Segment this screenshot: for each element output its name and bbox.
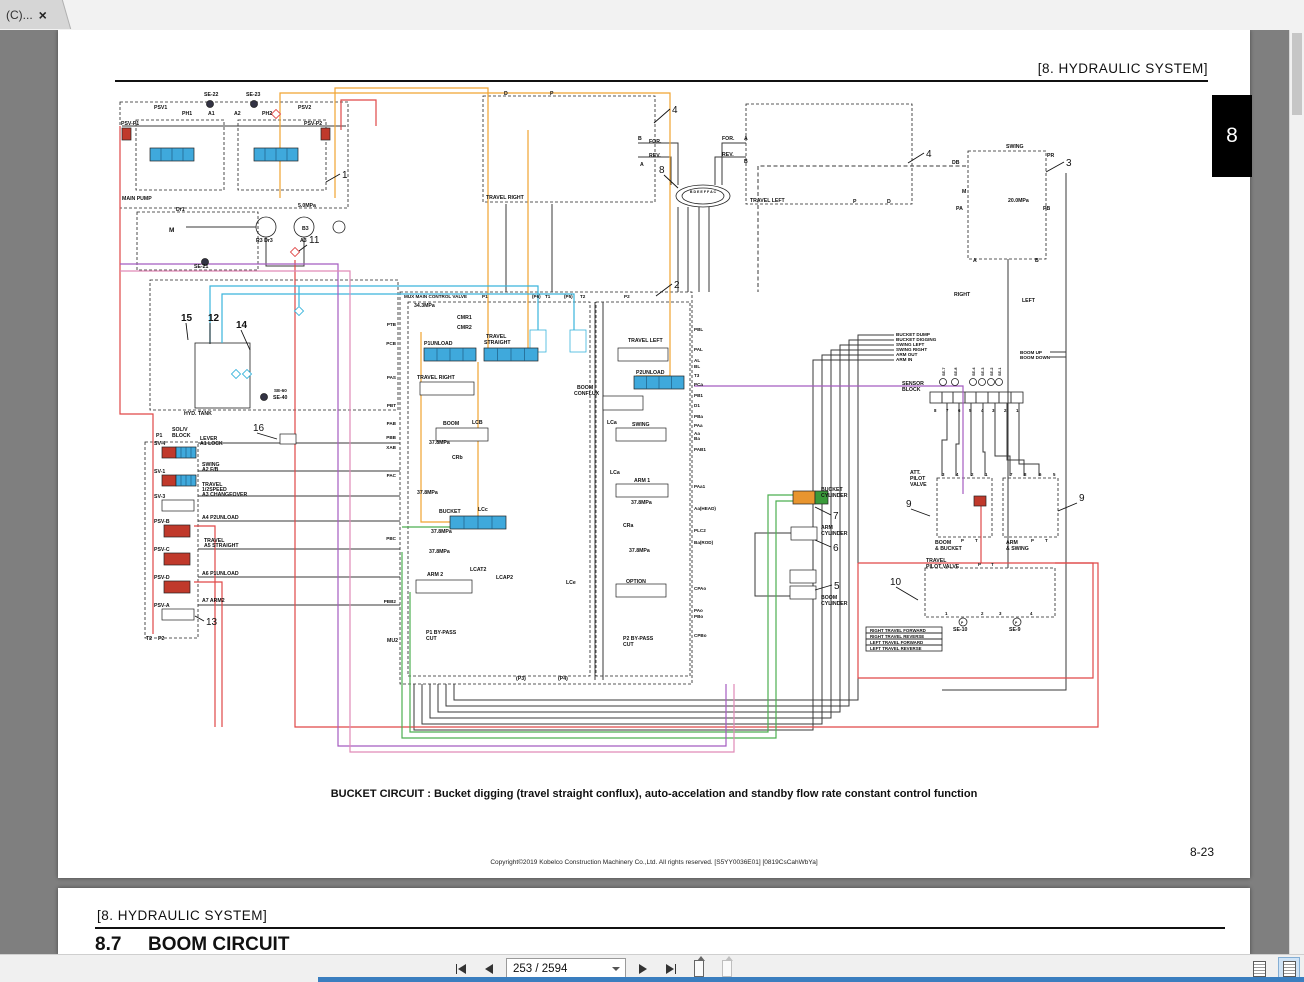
svg-text:SV-4: SV-4 (154, 441, 165, 447)
svg-text:PAa1: PAa1 (694, 484, 706, 489)
svg-text:P2: P2 (624, 294, 630, 299)
svg-text:A7 ARM2: A7 ARM2 (202, 598, 225, 604)
header-rule-next (95, 927, 1225, 929)
svg-text:CMR1: CMR1 (457, 315, 472, 321)
svg-text:14: 14 (236, 320, 248, 331)
svg-text:8: 8 (1024, 472, 1027, 477)
scrollbar-thumb[interactable] (1292, 33, 1302, 115)
svg-text:SE-60: SE-60 (274, 388, 287, 393)
svg-text:PAB1: PAB1 (694, 447, 706, 452)
svg-text:PBB2: PBB2 (384, 599, 397, 604)
svg-text:PSV-P2: PSV-P2 (304, 121, 322, 127)
page-number-combo[interactable]: 253 / 2594 (506, 958, 626, 979)
svg-text:1: 1 (342, 170, 348, 181)
svg-text:6: 6 (1039, 472, 1042, 477)
svg-text:T2: T2 (580, 294, 586, 299)
svg-text:(P4): (P4) (558, 676, 568, 682)
svg-text:CYLINDER: CYLINDER (821, 531, 848, 537)
svg-text:A5 STRAIGHT: A5 STRAIGHT (204, 543, 239, 549)
single-page-icon (1253, 961, 1266, 977)
svg-text:ARM IN: ARM IN (896, 357, 913, 362)
svg-text:CPAo: CPAo (694, 586, 706, 591)
svg-text:9: 9 (1079, 493, 1085, 504)
svg-text:CYLINDER: CYLINDER (821, 601, 848, 607)
svg-text:9: 9 (906, 499, 912, 510)
svg-text:PSV-C: PSV-C (154, 547, 170, 553)
svg-text:M: M (962, 189, 966, 195)
svg-text:4: 4 (981, 408, 984, 413)
svg-text:BL: BL (694, 364, 700, 369)
svg-text:T: T (1045, 538, 1048, 543)
svg-text:OPTION: OPTION (626, 579, 646, 585)
svg-text:PSV-A: PSV-A (154, 603, 170, 609)
svg-text:PH1: PH1 (182, 111, 192, 117)
svg-text:3: 3 (1066, 158, 1072, 169)
svg-text:CRa: CRa (623, 523, 633, 529)
copyright-line: Copyright©2019 Kobelco Construction Mach… (58, 859, 1250, 866)
svg-text:5: 5 (1053, 472, 1056, 477)
svg-text:BOOM: BOOM (443, 421, 459, 427)
svg-text:1: 1 (945, 611, 948, 616)
svg-text:11: 11 (309, 235, 320, 246)
svg-text:XAB: XAB (386, 445, 396, 450)
svg-text:PBo: PBo (694, 614, 703, 619)
svg-text:P: P (1031, 538, 1034, 543)
svg-text:PTB: PTB (387, 322, 397, 327)
svg-text:SE-9: SE-9 (1009, 627, 1021, 633)
svg-text:PSV1: PSV1 (154, 105, 167, 111)
svg-text:PCa: PCa (694, 382, 703, 387)
first-page-bar (456, 964, 457, 974)
svg-text:CPBo: CPBo (694, 633, 707, 638)
svg-text:STRAIGHT: STRAIGHT (484, 340, 511, 346)
svg-text:LCc: LCc (478, 507, 488, 513)
svg-text:B: B (744, 159, 748, 165)
chapter-header-next: [8. HYDRAULIC SYSTEM] (97, 908, 267, 923)
svg-text:RIGHT TRAVEL REVERSE: RIGHT TRAVEL REVERSE (870, 634, 924, 639)
svg-text:T1: T1 (545, 294, 551, 299)
last-page-bar (675, 964, 676, 974)
pdf-viewer-window: (C)... × SE-22SE-23PSV1PSV2PH1A1A2PH2PSV… (0, 0, 1304, 982)
svg-text:SE-3: SE-3 (981, 368, 985, 376)
first-page-button[interactable] (450, 958, 472, 979)
svg-text:8: 8 (659, 165, 665, 176)
svg-text:LCe: LCe (566, 580, 576, 586)
svg-text:16: 16 (253, 423, 265, 434)
svg-text:TRAVEL LEFT: TRAVEL LEFT (750, 198, 786, 204)
svg-text:D: D (504, 91, 508, 97)
previous-page-arrow-icon (485, 964, 493, 974)
svg-text:7: 7 (1010, 472, 1013, 477)
svg-text:MU2: MU2 (387, 638, 398, 644)
svg-text:SE-1: SE-1 (998, 368, 1002, 376)
svg-text:LEFT: LEFT (1022, 298, 1036, 304)
svg-text:37.8MPa: 37.8MPa (417, 490, 438, 496)
svg-text:P: P (961, 621, 964, 625)
svg-text:6: 6 (833, 543, 839, 554)
svg-text:RIGHT: RIGHT (954, 292, 971, 298)
svg-text:PILOT VALVE: PILOT VALVE (926, 564, 960, 570)
svg-text:D: D (887, 199, 891, 205)
svg-text:SE-22: SE-22 (204, 92, 219, 98)
svg-text:ARM 2: ARM 2 (427, 572, 443, 578)
svg-text:ARM 1: ARM 1 (634, 478, 650, 484)
svg-text:CUT: CUT (623, 642, 634, 648)
svg-text:PB1: PB1 (694, 393, 703, 398)
svg-text:A: A (744, 136, 748, 142)
svg-text:37.8MPa: 37.8MPa (429, 549, 450, 555)
svg-text:REV.: REV. (722, 152, 734, 158)
svg-text:PA: PA (956, 206, 963, 212)
svg-text:PAC: PAC (387, 473, 397, 478)
svg-text:Aa(HEAD): Aa(HEAD) (694, 506, 716, 511)
svg-text:BLOCK: BLOCK (172, 433, 191, 439)
svg-text:SE-2: SE-2 (990, 368, 994, 376)
tab-close-icon[interactable]: × (39, 7, 47, 23)
svg-text:PR: PR (1047, 153, 1054, 159)
svg-text:A2: A2 (234, 111, 241, 117)
svg-text:SE-8: SE-8 (954, 368, 958, 376)
next-page-button[interactable] (632, 958, 654, 979)
svg-text:P2UNLOAD: P2UNLOAD (636, 370, 665, 376)
combo-dropdown-arrow-icon[interactable] (612, 967, 620, 971)
svg-text:PSV2: PSV2 (298, 105, 311, 111)
svg-text:SV-3: SV-3 (154, 494, 165, 500)
header-rule (115, 80, 1208, 82)
svg-text:HYD. TANK: HYD. TANK (184, 411, 212, 417)
svg-text:Ba: Ba (694, 436, 700, 441)
svg-text:A: A (640, 162, 644, 168)
svg-text:A3 CHANGEOVER: A3 CHANGEOVER (202, 492, 248, 498)
svg-text:CONFLUX: CONFLUX (574, 391, 600, 397)
svg-text:P: P (550, 91, 554, 97)
svg-text:6: 6 (958, 408, 961, 413)
svg-text:PBB: PBB (386, 435, 396, 440)
svg-text:BUCKET: BUCKET (439, 509, 461, 515)
svg-text:P: P (1015, 621, 1018, 625)
svg-text:D1: D1 (694, 403, 700, 408)
svg-text:13: 13 (206, 617, 218, 628)
vertical-scrollbar[interactable] (1289, 30, 1304, 955)
previous-view-icon (694, 960, 704, 977)
svg-text:MAIN PUMP: MAIN PUMP (122, 196, 152, 202)
svg-text:37.8MPa: 37.8MPa (631, 500, 652, 506)
document-tab[interactable]: (C)... × (0, 0, 58, 29)
svg-text:R3 Dr3: R3 Dr3 (256, 238, 273, 244)
svg-text:SE-7: SE-7 (942, 368, 946, 376)
svg-text:CUT: CUT (426, 636, 437, 642)
svg-text:FOR.: FOR. (722, 136, 735, 142)
svg-text:TRAVEL RIGHT: TRAVEL RIGHT (417, 375, 456, 381)
svg-text:2: 2 (981, 611, 984, 616)
svg-text:LCB: LCB (472, 420, 483, 426)
svg-text:T2: T2 (146, 636, 152, 642)
next-page-arrow-icon (639, 964, 647, 974)
svg-text:SWING: SWING (1006, 144, 1024, 150)
last-page-arrow-icon (666, 964, 674, 974)
svg-text:3: 3 (999, 611, 1002, 616)
svg-text:(P6): (P6) (532, 294, 541, 299)
svg-text:SE-23: SE-23 (246, 92, 261, 98)
svg-text:PCB: PCB (386, 341, 396, 346)
svg-text:20.0MPa: 20.0MPa (1008, 198, 1029, 204)
svg-text:PAB: PAB (387, 421, 397, 426)
first-page-arrow-icon (458, 964, 466, 974)
svg-text:P: P (853, 199, 857, 205)
svg-text:P1: P1 (156, 433, 162, 439)
svg-text:CMR2: CMR2 (457, 325, 472, 331)
section-title: 8.7BOOM CIRCUIT (95, 934, 289, 955)
svg-text:2: 2 (674, 280, 680, 291)
next-view-button[interactable] (716, 958, 738, 979)
svg-text:B3: B3 (302, 226, 309, 232)
svg-text:37.8MPa: 37.8MPa (431, 529, 452, 535)
svg-text:4: 4 (926, 149, 932, 160)
svg-text:37.8MPa: 37.8MPa (629, 548, 650, 554)
svg-text:& BUCKET: & BUCKET (935, 546, 963, 552)
svg-text:P2: P2 (158, 636, 164, 642)
hydraulic-circuit-diagram: SE-22SE-23PSV1PSV2PH1A1A2PH2PSV-P1PSV-P2… (58, 30, 1250, 878)
svg-text:A1 LOCK: A1 LOCK (200, 441, 223, 447)
svg-text:LCa: LCa (610, 470, 620, 476)
svg-text:PB: PB (1043, 206, 1050, 212)
svg-text:P: P (961, 538, 964, 543)
tab-title: (C)... (6, 8, 33, 22)
svg-text:7: 7 (946, 408, 949, 413)
svg-text:SE-4: SE-4 (972, 367, 976, 376)
chapter-tab-marker: 8 (1212, 95, 1252, 177)
svg-text:TRAVEL RIGHT: TRAVEL RIGHT (486, 195, 525, 201)
svg-text:REV.: REV. (649, 153, 661, 159)
svg-text:PAa: PAa (694, 423, 703, 428)
svg-text:LCAT2: LCAT2 (470, 567, 486, 573)
svg-text:A6 P1UNLOAD: A6 P1UNLOAD (202, 571, 239, 577)
svg-text:10: 10 (890, 577, 902, 588)
svg-text:(P5): (P5) (564, 294, 573, 299)
svg-text:A: A (973, 258, 977, 264)
svg-text:P: P (978, 562, 981, 567)
svg-text:MUX MAIN CONTROL VALVE: MUX MAIN CONTROL VALVE (404, 294, 467, 299)
page-indicator: 253 / 2594 (513, 963, 567, 975)
svg-text:AL: AL (694, 358, 700, 363)
svg-text:34.3MPa: 34.3MPa (414, 303, 435, 309)
svg-text:2: 2 (971, 472, 974, 477)
svg-text:T: T (991, 562, 994, 567)
svg-text:A1: A1 (208, 111, 215, 117)
svg-text:P1UNLOAD: P1UNLOAD (424, 341, 453, 347)
svg-text:& SWING: & SWING (1006, 546, 1029, 552)
document-area: SE-22SE-23PSV1PSV2PH1A1A2PH2PSV-P1PSV-P2… (0, 30, 1290, 955)
svg-text:A4 P2UNLOAD: A4 P2UNLOAD (202, 515, 239, 521)
svg-text:PBT: PBT (387, 403, 396, 408)
svg-text:SE-40: SE-40 (273, 395, 288, 401)
chapter-header: [8. HYDRAULIC SYSTEM] (1038, 61, 1208, 76)
svg-text:1: 1 (985, 472, 988, 477)
svg-text:SE-21: SE-21 (194, 264, 209, 270)
previous-view-button[interactable] (688, 958, 710, 979)
svg-text:PH2: PH2 (262, 111, 272, 117)
previous-page-button[interactable] (478, 958, 500, 979)
svg-text:T: T (975, 538, 978, 543)
figure-caption: BUCKET CIRCUIT : Bucket digging (travel … (58, 788, 1250, 800)
section-number: 8.7 (95, 934, 148, 955)
svg-text:PBa: PBa (694, 414, 703, 419)
svg-text:LCa: LCa (607, 420, 617, 426)
next-view-icon (722, 960, 732, 977)
svg-text:7: 7 (833, 511, 839, 522)
svg-text:5: 5 (969, 408, 972, 413)
svg-text:M: M (169, 227, 174, 234)
svg-text:12: 12 (208, 313, 220, 324)
page-number: 8-23 (1190, 845, 1214, 859)
svg-text:PSV-D: PSV-D (154, 575, 170, 581)
svg-text:PAo: PAo (694, 608, 703, 613)
svg-text:B: B (638, 136, 642, 142)
svg-text:Dr1: Dr1 (176, 207, 185, 213)
page-253: SE-22SE-23PSV1PSV2PH1A1A2PH2PSV-P1PSV-P2… (58, 30, 1250, 878)
svg-text:8: 8 (934, 408, 937, 413)
svg-text:5: 5 (834, 581, 840, 592)
svg-text:PAS: PAS (387, 375, 396, 380)
svg-text:37.8MPa: 37.8MPa (429, 440, 450, 446)
section-name: BOOM CIRCUIT (148, 934, 289, 955)
svg-text:BOOM DOWN: BOOM DOWN (1020, 355, 1051, 360)
svg-text:4: 4 (1030, 611, 1033, 616)
svg-text:PBL: PBL (694, 327, 703, 332)
svg-text:15: 15 (181, 313, 193, 324)
svg-text:PSV-P1: PSV-P1 (121, 121, 139, 127)
svg-text:RIGHT TRAVEL FORWARD: RIGHT TRAVEL FORWARD (870, 628, 926, 633)
svg-text:B: B (1035, 258, 1039, 264)
svg-text:Ba(ROD): Ba(ROD) (694, 540, 714, 545)
svg-text:PBC: PBC (386, 536, 396, 541)
svg-text:B D E E F F A C: B D E E F F A C (690, 190, 717, 194)
svg-text:LCAP2: LCAP2 (496, 575, 513, 581)
svg-text:PLC2: PLC2 (694, 528, 706, 533)
svg-text:CRb: CRb (452, 455, 463, 461)
tab-bar: (C)... × (0, 0, 1304, 31)
svg-text:PAL: PAL (694, 347, 703, 352)
svg-text:SE-10: SE-10 (953, 627, 968, 633)
svg-text:DB: DB (952, 160, 960, 166)
svg-text:VALVE: VALVE (910, 482, 927, 488)
svg-text:A2 F/B: A2 F/B (202, 467, 219, 473)
svg-text:LEFT TRAVEL REVERSE: LEFT TRAVEL REVERSE (870, 646, 922, 651)
svg-text:SWING: SWING (632, 422, 650, 428)
svg-text:FOR.: FOR. (649, 139, 662, 145)
taskbar-edge-strip (318, 977, 1304, 982)
svg-text:BLOCK: BLOCK (902, 387, 921, 393)
svg-text:5.0MPa: 5.0MPa (298, 203, 316, 209)
svg-text:4: 4 (956, 472, 959, 477)
svg-text:PSV-B: PSV-B (154, 519, 170, 525)
svg-text:T3: T3 (694, 373, 700, 378)
svg-text:LEFT TRAVEL FORWARD: LEFT TRAVEL FORWARD (870, 640, 923, 645)
continuous-view-icon (1283, 961, 1296, 977)
svg-text:4: 4 (672, 105, 678, 116)
svg-text:SV-1: SV-1 (154, 469, 165, 475)
svg-text:(P3): (P3) (516, 676, 526, 682)
svg-text:P1: P1 (482, 294, 488, 299)
svg-text:3: 3 (942, 472, 945, 477)
page-254: [8. HYDRAULIC SYSTEM] 8.7BOOM CIRCUIT (58, 888, 1250, 955)
svg-text:TRAVEL LEFT: TRAVEL LEFT (628, 338, 664, 344)
last-page-button[interactable] (660, 958, 682, 979)
svg-text:A3: A3 (300, 238, 307, 244)
svg-text:CYLINDER: CYLINDER (821, 493, 848, 499)
